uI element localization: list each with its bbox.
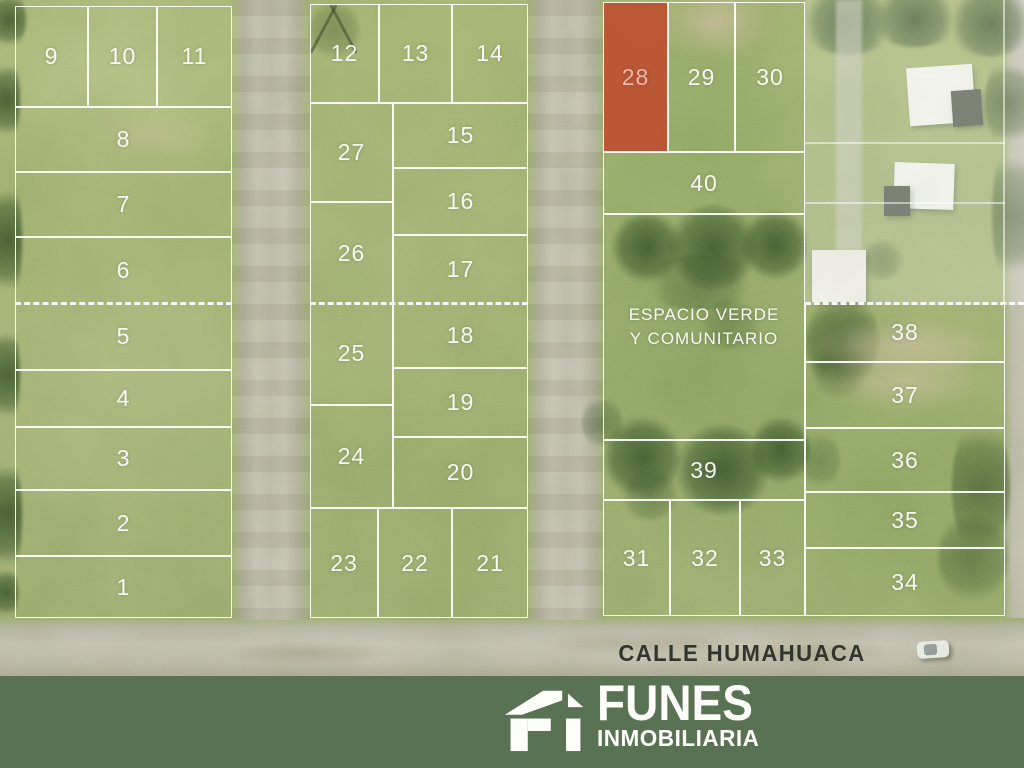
lot-40: 40 [603, 152, 805, 214]
brand-name: FUNES [597, 681, 790, 725]
lot-28: 28 [603, 2, 668, 152]
lot-37: 37 [805, 362, 1005, 428]
lot-number: 21 [476, 550, 504, 577]
lot-number: 36 [891, 447, 919, 474]
lot-number: 9 [45, 43, 59, 70]
lot-number: 25 [338, 340, 366, 367]
lot-16: 16 [393, 168, 528, 235]
lot-number: 23 [330, 550, 358, 577]
lot-number: 5 [117, 323, 131, 350]
lots-layer: ESPACIO VERDE Y COMUNITARIO 910118765432… [0, 0, 1024, 677]
lot-19: 19 [393, 368, 528, 437]
lot-21: 21 [452, 508, 528, 618]
lot-number: 14 [476, 40, 504, 67]
lot-number: 19 [447, 389, 475, 416]
lot-13: 13 [379, 4, 452, 103]
lot-number: 37 [891, 382, 919, 409]
lot-number: 2 [117, 510, 131, 537]
brand-block: FUNES INMOBILIARIA [597, 681, 807, 751]
green-area-label-line1: ESPACIO VERDE [629, 305, 780, 325]
lot-number: 17 [447, 256, 475, 283]
lot-14: 14 [452, 4, 528, 103]
lot-2: 2 [15, 490, 232, 556]
lot-29: 29 [668, 2, 735, 152]
lot-31: 31 [603, 500, 670, 616]
green-area-espacio-verde: ESPACIO VERDE Y COMUNITARIO [603, 214, 805, 440]
lot-12: 12 [310, 4, 379, 103]
lot-number: 40 [690, 170, 718, 197]
lot-35: 35 [805, 492, 1005, 548]
lot-number: 12 [331, 40, 359, 67]
dashed-boundary-line [310, 302, 528, 305]
lot-number: 30 [756, 64, 784, 91]
street-name-label: CALLE HUMAHUACA [617, 640, 867, 667]
lot-number: 38 [891, 319, 919, 346]
lot-number: 10 [109, 43, 137, 70]
lot-number: 15 [447, 122, 475, 149]
lot-number: 24 [338, 443, 366, 470]
lot-number: 29 [688, 64, 716, 91]
lot-number: 1 [117, 574, 131, 601]
green-area-label-line2: Y COMUNITARIO [630, 329, 778, 349]
lot-number: 3 [117, 445, 131, 472]
lot-3: 3 [15, 427, 232, 490]
lot-17: 17 [393, 235, 528, 303]
lot-24: 24 [310, 405, 393, 508]
lot-38: 38 [805, 303, 1005, 362]
lot-number: 39 [690, 457, 718, 484]
lot-7: 7 [15, 172, 232, 237]
dashed-boundary-line [15, 302, 232, 305]
lot-number: 8 [117, 126, 131, 153]
lot-number: 33 [759, 545, 787, 572]
lot-number: 11 [182, 43, 208, 70]
lot-number: 31 [623, 545, 651, 572]
dashed-boundary-line [805, 302, 1024, 305]
lot-10: 10 [88, 6, 157, 107]
lot-27: 27 [310, 103, 393, 202]
lot-number: 20 [447, 459, 475, 486]
lot-30: 30 [735, 2, 805, 152]
lot-number: 6 [117, 257, 131, 284]
lot-number: 27 [338, 139, 366, 166]
lot-number: 26 [338, 240, 366, 267]
lot-number: 4 [117, 385, 131, 412]
lot-map-flyer: ESPACIO VERDE Y COMUNITARIO 910118765432… [0, 0, 1024, 768]
lot-6: 6 [15, 237, 232, 303]
lot-number: 18 [447, 322, 475, 349]
lot-number: 34 [891, 569, 919, 596]
lot-36: 36 [805, 428, 1005, 492]
lot-34: 34 [805, 548, 1005, 616]
lot-8: 8 [15, 107, 232, 172]
funes-house-logo-icon [501, 686, 589, 753]
brand-subtitle: INMOBILIARIA [597, 725, 803, 751]
lot-5: 5 [15, 303, 232, 370]
lot-number: 32 [691, 545, 719, 572]
lot-number: 28 [622, 64, 650, 91]
lot-15: 15 [393, 103, 528, 168]
lot-25: 25 [310, 303, 393, 405]
lot-9: 9 [15, 6, 88, 107]
lot-number: 16 [447, 188, 475, 215]
lot-number: 13 [402, 40, 430, 67]
lot-20: 20 [393, 437, 528, 508]
lot-32: 32 [670, 500, 740, 616]
lot-33: 33 [740, 500, 805, 616]
lot-11: 11 [157, 6, 232, 107]
lot-23: 23 [310, 508, 378, 618]
lot-number: 7 [117, 191, 131, 218]
lot-4: 4 [15, 370, 232, 427]
lot-22: 22 [378, 508, 452, 618]
lot-number: 35 [891, 507, 919, 534]
lot-26: 26 [310, 202, 393, 303]
lot-18: 18 [393, 303, 528, 368]
lot-1: 1 [15, 556, 232, 618]
lot-39: 39 [603, 440, 805, 500]
lot-number: 22 [401, 550, 429, 577]
